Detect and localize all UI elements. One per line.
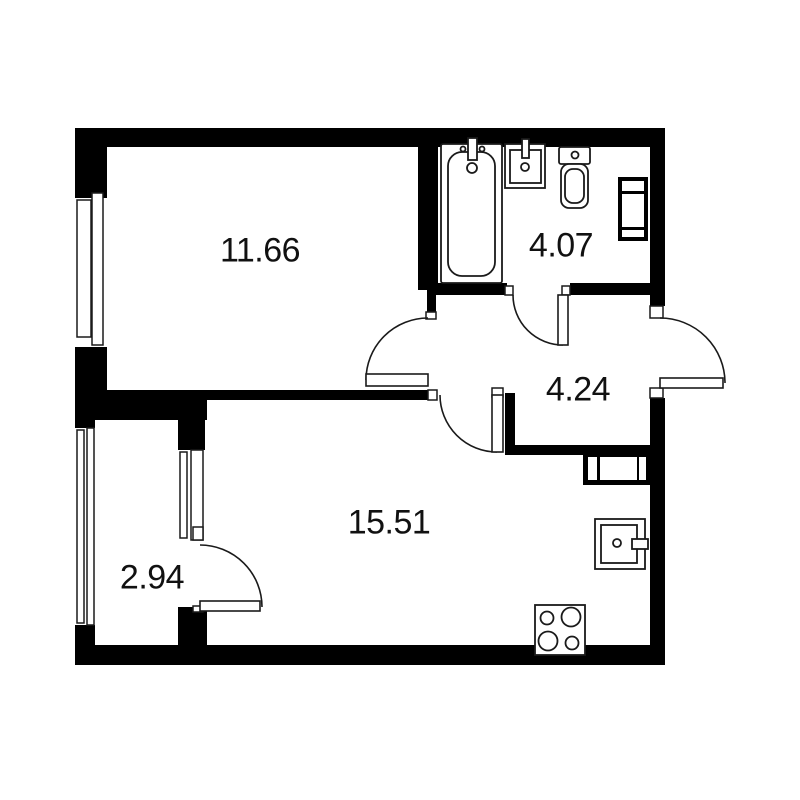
room-label-balcony: 2.94	[120, 559, 184, 598]
room-label-hallway: 4.24	[546, 371, 610, 410]
room-label-room-1: 11.66	[220, 232, 300, 271]
room-label-kitchen-living: 15.51	[348, 504, 431, 543]
floor-plan: 11.664.074.2415.512.94	[0, 0, 800, 800]
room-labels: 11.664.074.2415.512.94	[0, 0, 800, 800]
room-label-bathroom: 4.07	[529, 227, 593, 266]
